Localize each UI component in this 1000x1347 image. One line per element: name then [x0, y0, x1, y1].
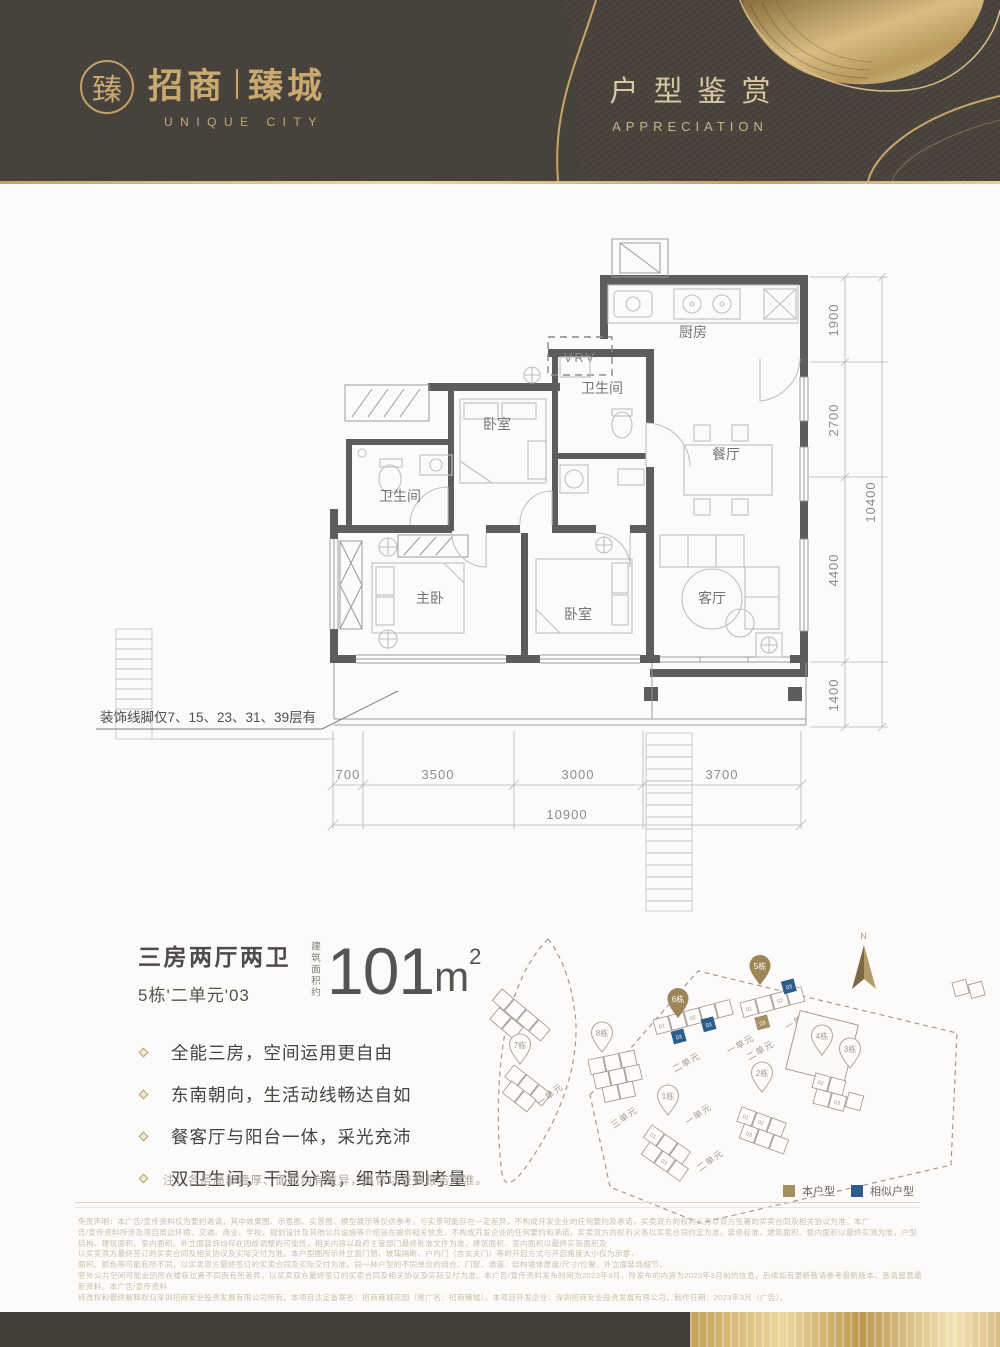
- molding-annotation: 装饰线脚仅7、15、23、31、39层有: [96, 691, 398, 729]
- unit-label: 二单元: [695, 1147, 726, 1173]
- logo-glyph: 臻: [92, 65, 122, 109]
- building-cluster-2: 01 02 03 2栋: [732, 1062, 794, 1154]
- legend-item-current: 本户型: [783, 1183, 835, 1199]
- room-label-kitchen: 厨房: [679, 324, 707, 340]
- siteplan-legend: 本户型 相似户型: [783, 1183, 930, 1199]
- dim-right-2: 2700: [826, 404, 841, 437]
- parcel-left: [498, 939, 576, 1183]
- unit-label: 二单元: [671, 1050, 702, 1075]
- diamond-bullet-icon: [139, 1132, 149, 1142]
- pin-label: 4栋: [816, 1031, 828, 1041]
- list-item: 餐客厅与阳台一体，采光充沛: [140, 1124, 467, 1149]
- building-cluster-1: 01 03 1栋 一单元 二单元: [635, 1085, 726, 1181]
- flyer-page: 臻 招商 臻城 UNIQUE CITY 户型鉴赏 APPRECIATION: [0, 0, 1000, 1347]
- dim-right-3: 4400: [826, 554, 841, 587]
- diamond-bullet-icon: [139, 1048, 149, 1058]
- building-cluster-6: 03 03 01 02 6栋 二单元 一单元: [653, 988, 756, 1074]
- disclaimer-line: 免责声明：本广告/宣传资料仅为要约邀请，其中效果图、示意图、实景图、模型展示等仅…: [78, 1217, 922, 1228]
- disclaimer-line: 室外公共空间可能会因所在楼栋位置不同而有所差异，以买卖双方最终签订的买卖合同及相…: [78, 1271, 922, 1293]
- disclaimer-line: 以买卖双方最终签订的买卖合同及相关协议及实际交付为准。本户型图所示外立面门窗、玻…: [78, 1249, 922, 1260]
- windows: [330, 239, 808, 725]
- diamond-bullet-icon: [139, 1174, 149, 1184]
- bullet-text: 东南朝向，生活动线畅达自如: [171, 1082, 412, 1107]
- legend-label: 相似户型: [870, 1183, 914, 1199]
- dim-right-4: 1400: [826, 679, 841, 712]
- diamond-bullet-icon: [139, 1090, 149, 1100]
- molding-annotation-text: 装饰线脚仅7、15、23、31、39层有: [100, 710, 316, 725]
- brand-lockup: 臻 招商 臻城 UNIQUE CITY: [80, 58, 326, 129]
- pin-label: 8栋: [596, 1028, 608, 1038]
- area-value: 101: [327, 938, 434, 1004]
- pin-label: 5栋: [754, 961, 766, 971]
- legend-swatch-gold: [783, 1185, 795, 1197]
- dim-bottom-total: 10900: [546, 807, 587, 822]
- footnote: 注：各层局部墙厚、面积均有差异，具体以查账报告为准。: [163, 1172, 488, 1188]
- brand-name: 招商 臻城: [148, 58, 326, 109]
- dim-right-1: 1900: [826, 304, 841, 337]
- room-label-bath-left: 卫生间: [379, 488, 421, 504]
- north-label: N: [860, 931, 868, 941]
- dim-bottom-2: 3500: [422, 767, 455, 782]
- pin-label: 3栋: [844, 1044, 856, 1054]
- room-label-living: 客厅: [698, 590, 726, 606]
- dim-bottom-1: 700: [336, 767, 361, 782]
- legal-disclaimer: 免责声明：本广告/宣传资料仅为要约邀请，其中效果图、示意图、实景图、模型展示等仅…: [78, 1217, 922, 1303]
- section-title: 户型鉴赏: [555, 68, 825, 110]
- disclaimer-line: 修改权和最终解释权归深圳招商安业投资发展有限公司所有。本项目法定备案名：招商雍城…: [78, 1293, 922, 1304]
- room-label-bedroom-mid: 卧室: [564, 606, 592, 622]
- divider-line: [75, 1207, 920, 1208]
- dim-bottom-3: 3000: [562, 767, 595, 782]
- unit-identifier: 5栋'二单元'03: [138, 981, 291, 1006]
- brand-name-left: 招商: [148, 58, 226, 109]
- bullet-text: 餐客厅与阳台一体，采光充沛: [171, 1124, 412, 1149]
- siteplan-map: N 7栋 一单元: [460, 925, 1000, 1225]
- floorplan-drawing: VRV: [0, 225, 1000, 925]
- header-banner: 臻 招商 臻城 UNIQUE CITY 户型鉴赏 APPRECIATION: [0, 0, 1000, 181]
- area-label: 建筑面积约: [307, 941, 321, 999]
- brand-name-en: UNIQUE CITY: [164, 115, 326, 129]
- building-cluster-8: 8栋 三单元: [588, 1022, 645, 1130]
- brand-logo-icon: 臻: [80, 60, 134, 114]
- disclaimer-line: 告/宣传资料所涉及项目周边环境、交通、商业、学校、规划设计及其他公共设施等介绍旨…: [78, 1228, 922, 1239]
- decor-strips: [116, 629, 692, 911]
- layout-title: 三房两厅两卫: [138, 938, 291, 972]
- brand-name-right: 臻城: [248, 58, 326, 109]
- unit-spec-block: 三房两厅两卫 5栋'二单元'03 建筑面积约 101 m 2: [138, 938, 481, 1006]
- brand-divider: [236, 69, 238, 99]
- room-label-bath-right: 卫生间: [581, 380, 623, 396]
- dim-bottom-4: 3700: [706, 767, 739, 782]
- section-subtitle: APPRECIATION: [555, 119, 825, 134]
- unit-label: 一单元: [683, 1101, 714, 1127]
- divider-line: [75, 1202, 920, 1203]
- section-title-block: 户型鉴赏 APPRECIATION: [555, 68, 825, 134]
- building-cluster-7: 7栋 一单元: [482, 989, 565, 1117]
- header-gold-rule: [0, 181, 1000, 184]
- north-arrow-icon: N: [852, 931, 876, 989]
- legend-label: 本户型: [802, 1183, 835, 1199]
- legend-swatch-blue: [851, 1185, 863, 1197]
- area-figure: 101 m 2: [327, 938, 481, 1004]
- disclaimer-line: 结构、建筑面积、室内面积、外立面装饰均存在因故调整的可能性，相关内容以政府主管部…: [78, 1239, 922, 1250]
- unit-label: 三单元: [609, 1104, 640, 1130]
- pin-label: 1栋: [662, 1091, 674, 1101]
- footer-gold-bar: [690, 1312, 1000, 1347]
- pin-label: 6栋: [672, 994, 684, 1004]
- room-label-dining: 餐厅: [712, 446, 740, 462]
- list-item: 东南朝向，生活动线畅达自如: [140, 1082, 467, 1107]
- dim-right-total: 10400: [863, 481, 878, 522]
- room-label-bedroom-top: 卧室: [483, 416, 511, 432]
- disclaimer-line: 面积、颜色等可能有所不同，以买卖双方最终签订的买卖合同及实际交付为准。同一种户型…: [78, 1260, 922, 1271]
- bullet-text: 全能三房，空间运用更自由: [171, 1040, 393, 1065]
- room-label-master: 主卧: [416, 590, 444, 606]
- pin-label: 7栋: [514, 1040, 526, 1050]
- pin-label: 2栋: [756, 1068, 768, 1078]
- footer-dark-bar: [0, 1312, 690, 1347]
- list-item: 全能三房，空间运用更自由: [140, 1040, 467, 1065]
- legend-item-similar: 相似户型: [851, 1183, 914, 1199]
